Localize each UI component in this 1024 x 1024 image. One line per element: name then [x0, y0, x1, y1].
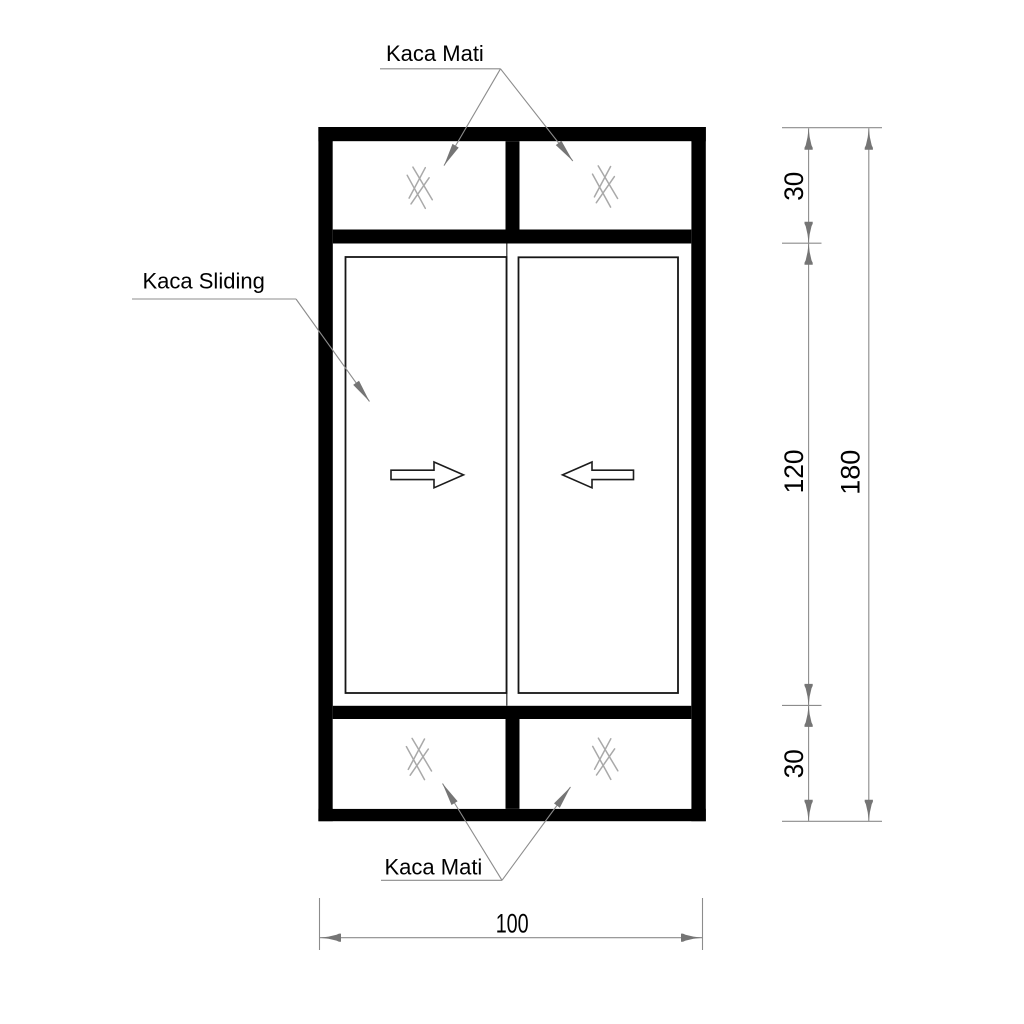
svg-text:Kaca Mati: Kaca Mati: [385, 854, 483, 879]
svg-text:Kaca Mati: Kaca Mati: [386, 41, 484, 66]
svg-text:180: 180: [835, 450, 865, 495]
svg-text:30: 30: [779, 172, 809, 201]
svg-text:30: 30: [779, 749, 809, 778]
svg-text:100: 100: [496, 908, 529, 938]
svg-text:Kaca Sliding: Kaca Sliding: [143, 269, 265, 294]
svg-text:120: 120: [779, 449, 809, 493]
